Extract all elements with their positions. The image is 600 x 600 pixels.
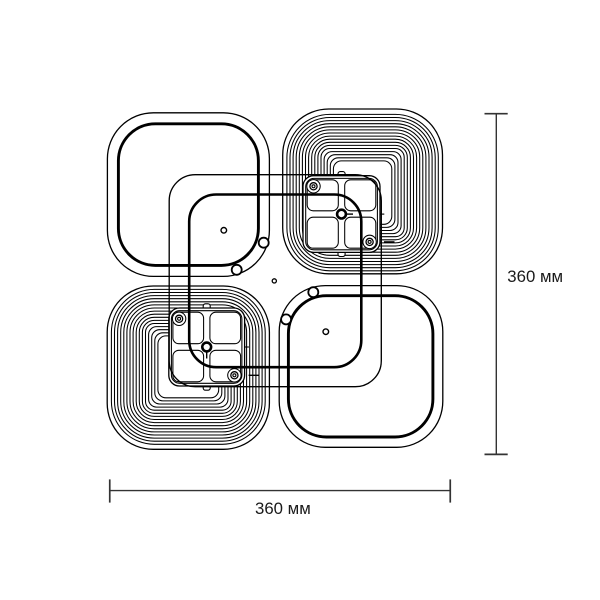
svg-text:360 мм: 360 мм xyxy=(255,499,311,518)
svg-text:360 мм: 360 мм xyxy=(507,267,563,286)
